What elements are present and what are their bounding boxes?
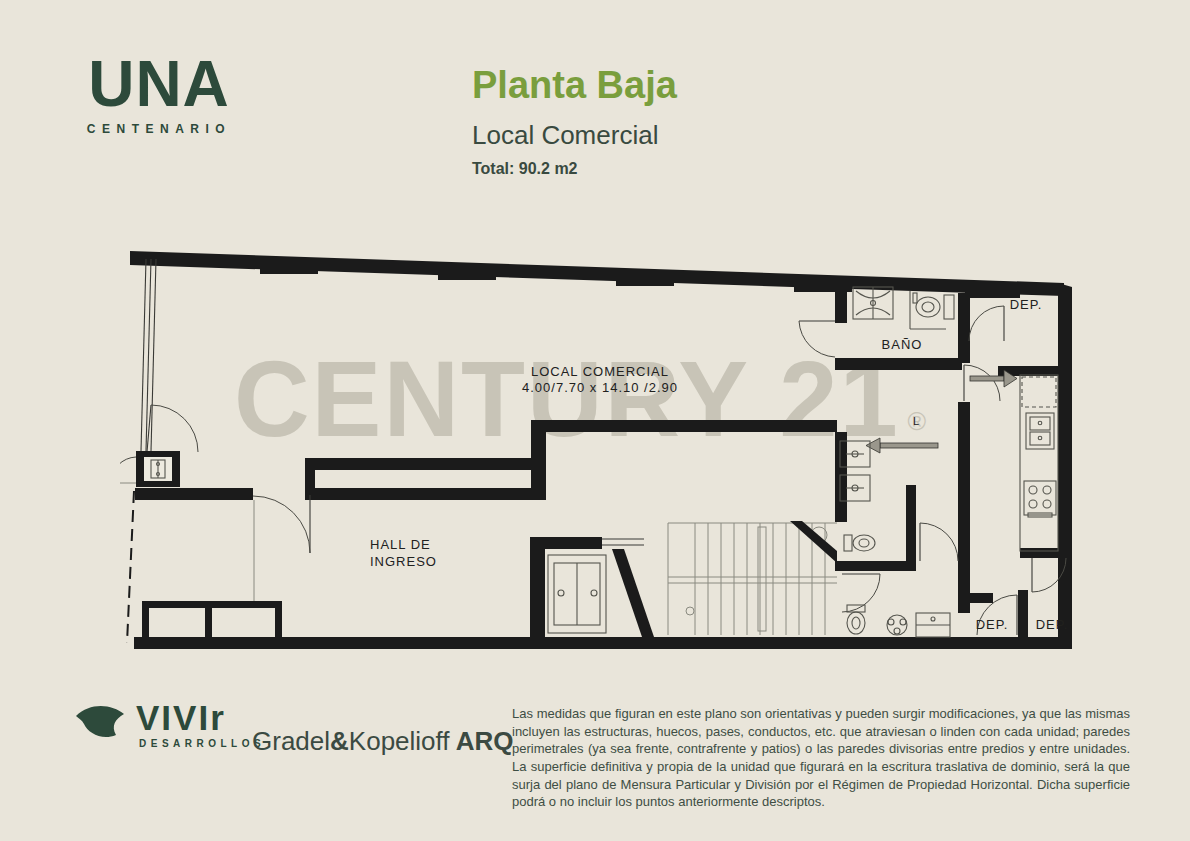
label-local-dimensions: 4.00/7.70 x 14.10 /2.90 [522,380,678,395]
glass-facade [141,259,156,451]
una-logo: UNA CENTENARIO [84,52,234,136]
label-bano: BAÑO [882,337,923,352]
property-boundary-dashed [127,491,134,643]
page-title: Planta Baja [472,66,677,104]
wc-mid [844,535,875,551]
arq-ampersand: & [330,726,349,756]
total-area: Total: 90.2 m2 [472,161,677,177]
floor-plan: CENTURY 21® [120,245,1072,657]
bathroom-door [799,321,835,357]
vivir-logo-subtext: DESARROLLOS [139,738,265,749]
planter-sink [887,615,907,635]
title-block: Planta Baja Local Comercial Total: 90.2 … [472,66,677,177]
label-l: L [913,415,919,427]
corridor-door [964,365,1000,401]
entrance-door [147,405,198,452]
label-dep-top: DEP. [1010,297,1043,312]
architect-credit: Gradel&Kopelioff ARQ [252,726,514,757]
arq-suffix: ARQ [450,726,514,756]
label-dep-bottom-right: DEP. [1036,617,1069,632]
label-local-comercial: LOCAL COMERCIAL [531,364,669,379]
arq-name-1: Gradel [252,726,330,756]
meter-box [120,451,180,487]
shower [853,287,893,319]
legal-disclaimer: Las medidas que figuran en este plano so… [512,705,1130,811]
inner-walls [135,289,1062,637]
elevator [530,537,654,637]
service-rooms [142,601,282,637]
vivir-leaf-icon [72,700,130,746]
accessible-toilet [910,291,954,329]
vivir-logo: VIVIr DESARROLLOS [72,700,265,749]
wc-bottom-door [842,574,880,612]
vivir-logo-text: VIVIr [136,700,265,735]
stairs [668,521,837,635]
cabinet-box [916,613,950,637]
hall-door [253,495,310,553]
arq-name-2: Kopelioff [349,726,450,756]
outer-walls [130,251,1072,649]
label-hall-line1: HALL DE [370,537,431,552]
kitchen-counter [1020,375,1058,551]
wc-cluster-door [920,523,958,561]
label-dep-bottom-left: DEP. [976,617,1009,632]
floor-plan-drawing: LOCAL COMERCIAL 4.00/7.70 x 14.10 /2.90 … [120,245,1072,657]
una-logo-text: UNA [84,52,234,116]
dep-top-door [969,306,1004,341]
page-subtitle: Local Comercial [472,122,677,148]
label-hall-line2: INGRESO [370,554,437,569]
una-logo-subtext: CENTENARIO [84,122,234,136]
entry-arrow-left [866,438,938,453]
